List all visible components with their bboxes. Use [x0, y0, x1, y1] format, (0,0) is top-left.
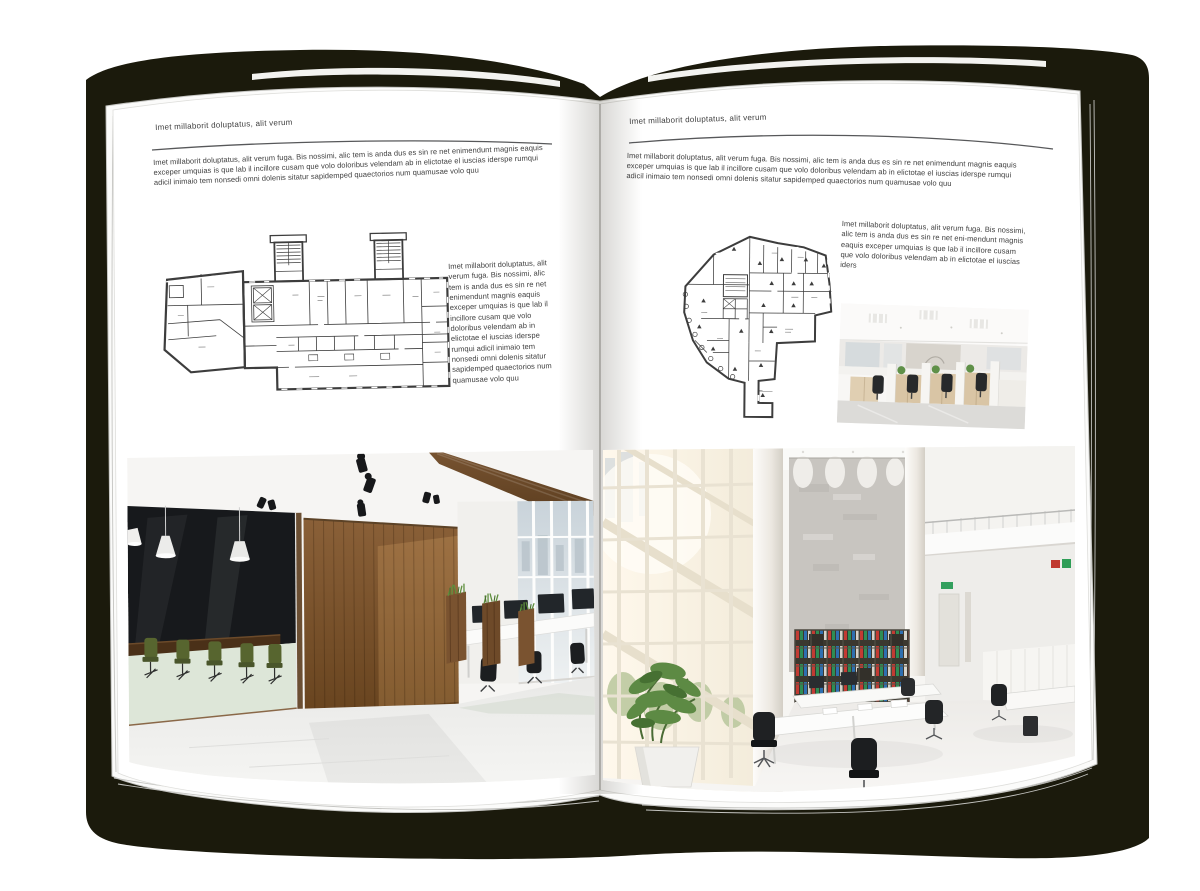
floorplan-left [156, 222, 460, 418]
right-header-rule [627, 131, 1057, 155]
waste-bin [1023, 716, 1038, 736]
right-page-sidebar-text: Imet millaborit doluptatus, alit verum f… [840, 219, 1028, 278]
exit-sign [941, 582, 953, 589]
red-sign [1051, 560, 1060, 568]
office-photo-small [837, 303, 1029, 429]
office-photo-loft [127, 445, 595, 788]
meeting-room [127, 505, 303, 726]
plan-markers [696, 246, 826, 397]
wood-plank-wall [303, 518, 458, 715]
magazine-spread-mockup: Imet millaborit doluptatus, alit verum I… [0, 0, 1200, 891]
window-wall [603, 444, 755, 792]
office-photo-atrium [603, 444, 1075, 796]
left-page-sidebar-text: Imet millaborit doluptatus, alit verum f… [448, 258, 561, 386]
floorplan-right [650, 220, 842, 420]
right-wall [925, 544, 1075, 706]
first-aid-sign [1062, 559, 1071, 568]
